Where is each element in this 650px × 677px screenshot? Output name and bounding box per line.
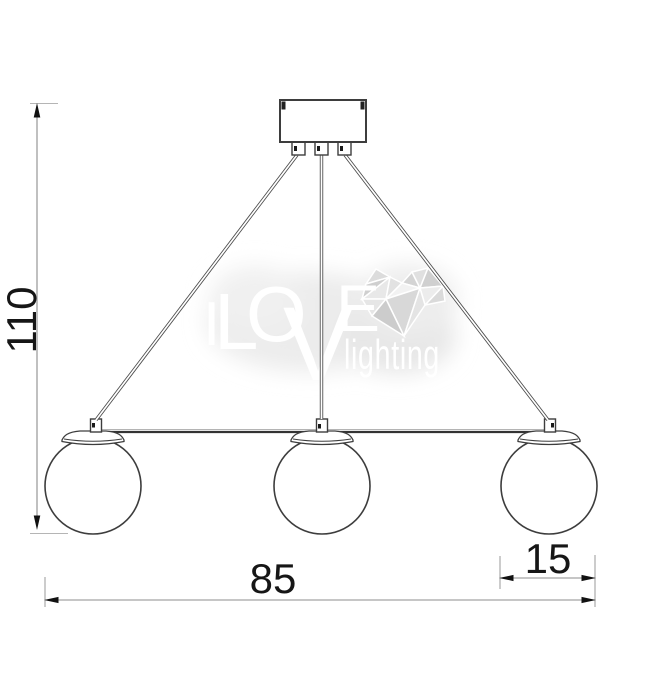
glass-globe-left xyxy=(45,438,141,534)
canopy-screw-right xyxy=(361,102,365,110)
wire-connector-left xyxy=(91,419,102,432)
wire-connector-center xyxy=(317,419,328,432)
canopy-screw-left xyxy=(282,102,286,110)
canopy-stub-left xyxy=(292,142,305,155)
lamp-cap-right xyxy=(518,431,580,445)
canopy-stubs xyxy=(292,142,351,155)
watermark: I L O V E lighting xyxy=(203,264,458,403)
canopy-stub-right xyxy=(338,142,351,155)
arrow-up-icon xyxy=(34,103,41,118)
glass-globe-center xyxy=(274,438,370,534)
glass-globe-right xyxy=(501,438,597,534)
dimension-shade-label: 15 xyxy=(525,535,572,582)
dimension-height-label: 110 xyxy=(0,287,45,354)
arrow-left-icon xyxy=(44,597,59,603)
watermark-brand-word: lighting xyxy=(344,331,440,378)
lamp-cap-left xyxy=(62,431,124,445)
wire-connector-right xyxy=(545,419,556,432)
ceiling-canopy xyxy=(280,100,366,142)
arrow-left-icon xyxy=(499,575,514,581)
dimension-drawing: I L O V E lighting xyxy=(0,0,650,677)
lamp-cap-center xyxy=(291,431,353,445)
dimension-width-label: 85 xyxy=(250,555,297,602)
arrow-down-icon xyxy=(34,516,41,531)
arrow-right-icon xyxy=(582,575,597,581)
canopy-stub-center xyxy=(315,142,328,155)
fixture xyxy=(45,100,597,534)
arrow-right-icon xyxy=(582,597,597,603)
dimension-shade-width: 15 xyxy=(499,535,596,589)
drawing-canvas: I L O V E lighting xyxy=(0,0,650,677)
